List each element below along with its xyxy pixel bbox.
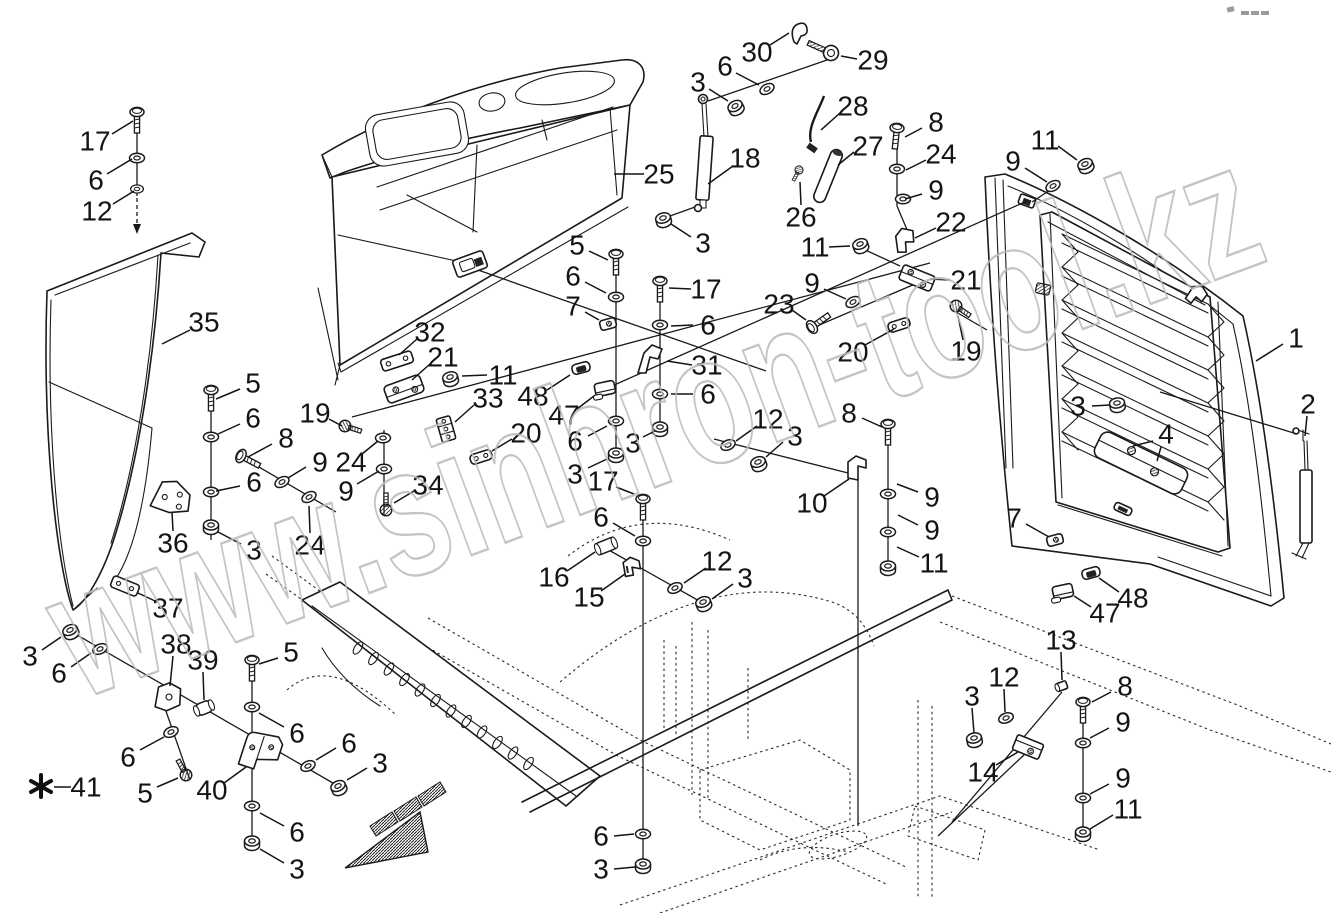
washer-6 [130,153,145,163]
callout-29-24: 29 [857,45,888,76]
callout-11-64: 11 [1113,794,1142,825]
leader-line-3-84 [614,867,635,869]
leader-line-30-23 [770,33,789,45]
latch-47 [1049,583,1075,603]
callout-17-0: 17 [79,126,110,157]
leader-line-5-4 [216,389,240,399]
leader-line-13-57 [1061,652,1062,680]
leader-line-10-40 [824,479,849,496]
callout-6-66: 6 [565,261,581,292]
leader-line-6-92 [140,737,164,750]
screw-26 [790,165,805,183]
washer-6 [758,81,776,97]
callout-8-45: 8 [928,107,944,138]
callout-3-26: 3 [690,67,706,98]
leader-line-3-30 [671,224,691,237]
washer-9 [1076,793,1091,803]
callout-9-47: 9 [928,175,944,206]
washer-24 [890,164,905,174]
leader-line-3-98 [260,849,284,863]
callout-9-63: 9 [1115,763,1131,794]
callout-13-57: 13 [1045,625,1076,656]
nut-3 [1109,397,1126,414]
callout-5-4: 5 [245,368,261,399]
leader-line-8-61 [1092,692,1111,702]
washer-6 [609,292,624,302]
leader-line-5-65 [589,251,608,260]
callout-9-43: 9 [924,515,940,546]
bolt-17 [653,276,667,302]
callout-47-56: 47 [1089,598,1120,629]
washer-6 [636,536,651,546]
nut-3 [694,595,713,614]
top-hardware [792,23,844,204]
leader-line-29-24 [841,56,857,59]
leader-line-6-66 [585,282,606,293]
nut-3 [636,859,651,874]
callout-5-65: 5 [569,230,585,261]
callout-6-83: 6 [593,821,609,852]
washer-6 [204,432,219,442]
corner-marks [1227,6,1269,15]
leader-line-9-62 [1090,728,1109,738]
callout-7-54: 7 [1006,503,1022,534]
leader-line-9-42 [897,484,918,492]
callout-40-94: 40 [196,775,227,806]
callout-30-23: 30 [741,37,772,68]
callout-11-48: 11 [1030,125,1059,156]
leader-line-3-52 [1092,405,1110,406]
callout-1-50: 1 [1288,323,1304,354]
washer-6 [162,725,180,740]
washer-9 [896,194,911,204]
leader-line-6-5 [218,424,240,434]
cable-28 [810,96,824,142]
callout-3-52: 3 [1070,391,1086,422]
callout-9-49: 9 [1005,146,1021,177]
leader-line-6-83 [614,834,634,836]
clip-10 [848,456,866,480]
clip-48 [1081,566,1101,580]
callout-12-81: 12 [701,546,732,577]
plate-32 [380,350,414,371]
leader-line-6-25 [736,73,759,85]
bushing-39 [192,699,216,718]
callout-10-40: 10 [796,488,827,519]
footnote-asterisk [31,775,51,797]
callout-9-62: 9 [1115,707,1131,738]
bolt-5 [204,385,218,411]
leader-line-7-67 [585,312,599,320]
leader-line-11-64 [1090,815,1113,829]
callout-6-1: 6 [88,165,104,196]
nut-3 [726,98,746,118]
eyebolt-29 [805,36,841,63]
callout-6-87: 6 [51,658,67,689]
leader-line-6-1 [107,159,132,174]
callout-24-46: 24 [925,139,956,170]
leader-line-15-80 [601,574,625,591]
leader-line-9-63 [1090,784,1109,794]
callout-21-16: 21 [427,342,458,373]
washer-6 [245,702,260,712]
nut-11 [1076,827,1091,842]
callout-12-2: 12 [81,196,112,227]
parts-diagram-page: 1761235568919249243663322111332034251830… [0,0,1331,913]
nut-3 [966,732,984,749]
washer-6 [299,759,317,774]
callout-5-93: 5 [137,778,153,809]
leader-line-12-2 [113,191,134,204]
leader-line-3-96 [347,768,367,780]
nut-3 [329,778,349,797]
callout-19-8: 19 [299,398,330,429]
callout-48-55: 48 [1117,583,1148,614]
gas-strut-2 [1292,428,1312,559]
leader-line-6-95 [316,748,336,760]
callout-9-42: 9 [924,482,940,513]
pin-13 [1054,681,1068,693]
callout-27-28: 27 [852,131,883,162]
leader-line-17-72 [669,288,691,289]
cable-end-28 [806,143,818,154]
callout-3-98: 3 [289,854,305,885]
callout-15-80: 15 [573,582,604,613]
leader-line-5-93 [157,778,178,787]
callout-28-27: 28 [837,91,868,122]
bolt-8 [888,123,905,150]
washer-12 [997,711,1014,725]
direction-arrow [345,782,446,868]
leader-line-35-3 [162,330,190,344]
callout-3-30: 3 [695,228,711,259]
exploded-view-canvas: 1761235568919249243663322111332034251830… [0,0,1331,913]
callout-6-95: 6 [341,728,357,759]
callout-11-44: 11 [919,548,948,579]
washer-6 [636,829,651,839]
bolt-8 [1076,697,1090,723]
callout-6-91: 6 [289,718,305,749]
callout-8-61: 8 [1117,671,1133,702]
leader-line-48-55 [1099,578,1119,592]
leader-line-6-91 [259,713,284,727]
callout-25-21: 25 [643,159,674,190]
callout-6-5: 6 [245,403,261,434]
washer-9 [1076,738,1091,748]
leader-line-24-46 [906,160,926,170]
leader-line-3-82 [712,584,733,599]
callout-6-25: 6 [717,51,733,82]
leader-line-1-50 [1256,344,1283,361]
callout-3-59: 3 [964,681,980,712]
callout-2-51: 2 [1300,389,1316,420]
callout-6-97: 6 [289,817,305,848]
callout-4-53: 4 [1158,419,1174,450]
callout-18-22: 18 [729,143,760,174]
leader-line-11-44 [897,547,919,557]
callout-3-86: 3 [22,641,38,672]
callout-3-96: 3 [372,748,388,779]
block-14 [1012,734,1044,759]
callout-6-92: 6 [120,742,136,773]
leader-line-17-0 [112,121,133,134]
callout-3-82: 3 [737,563,753,594]
callout-7-67: 7 [565,291,581,322]
leader-line-8-45 [905,128,922,137]
callout-26-29: 26 [785,202,816,233]
washer-6 [245,801,260,811]
callout-35-3: 35 [188,307,219,338]
nut-3 [245,836,260,851]
leader-line-3-59 [972,708,974,733]
washer-9 [881,489,896,499]
gas-strut-18 [695,95,714,212]
washer-9 [881,527,896,537]
leader-line-6-97 [260,813,284,826]
leader-line-9-43 [898,515,918,525]
callout-14-60: 14 [967,757,998,788]
nut-3 [654,211,672,229]
handle-27 [812,148,844,204]
nut-11 [881,561,896,576]
callout-41-99: 41 [70,772,101,803]
hook-30 [792,23,807,44]
callout-3-84: 3 [593,854,609,885]
callout-12-58: 12 [988,662,1019,693]
bolt-5 [609,249,623,275]
bolt-17 [130,107,144,133]
washer-12 [666,581,684,596]
